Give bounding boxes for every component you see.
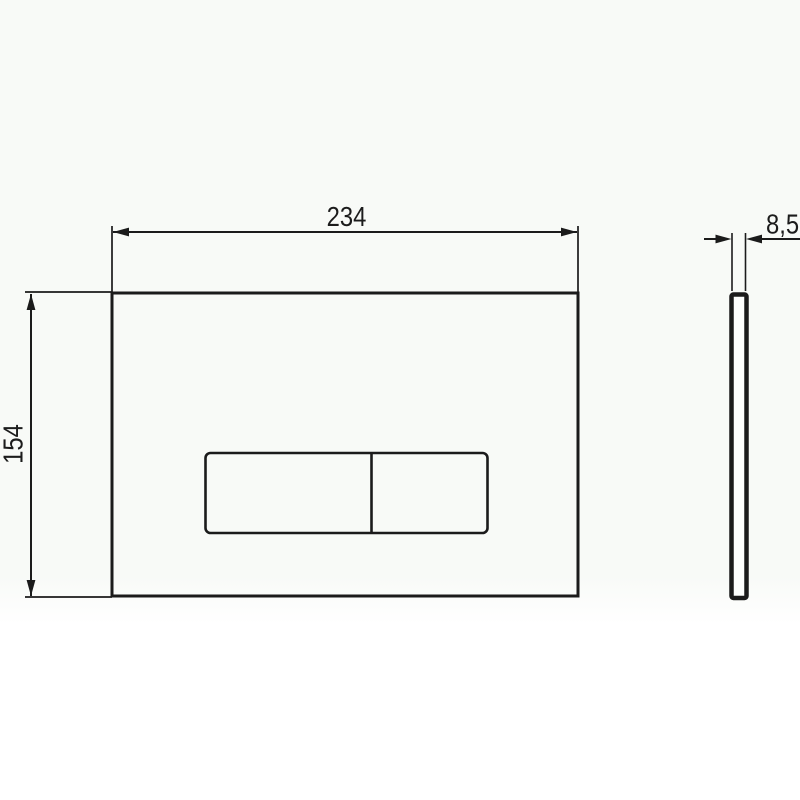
svg-text:8,5: 8,5 (766, 208, 799, 240)
svg-text:154: 154 (0, 424, 29, 464)
svg-text:234: 234 (327, 200, 367, 232)
